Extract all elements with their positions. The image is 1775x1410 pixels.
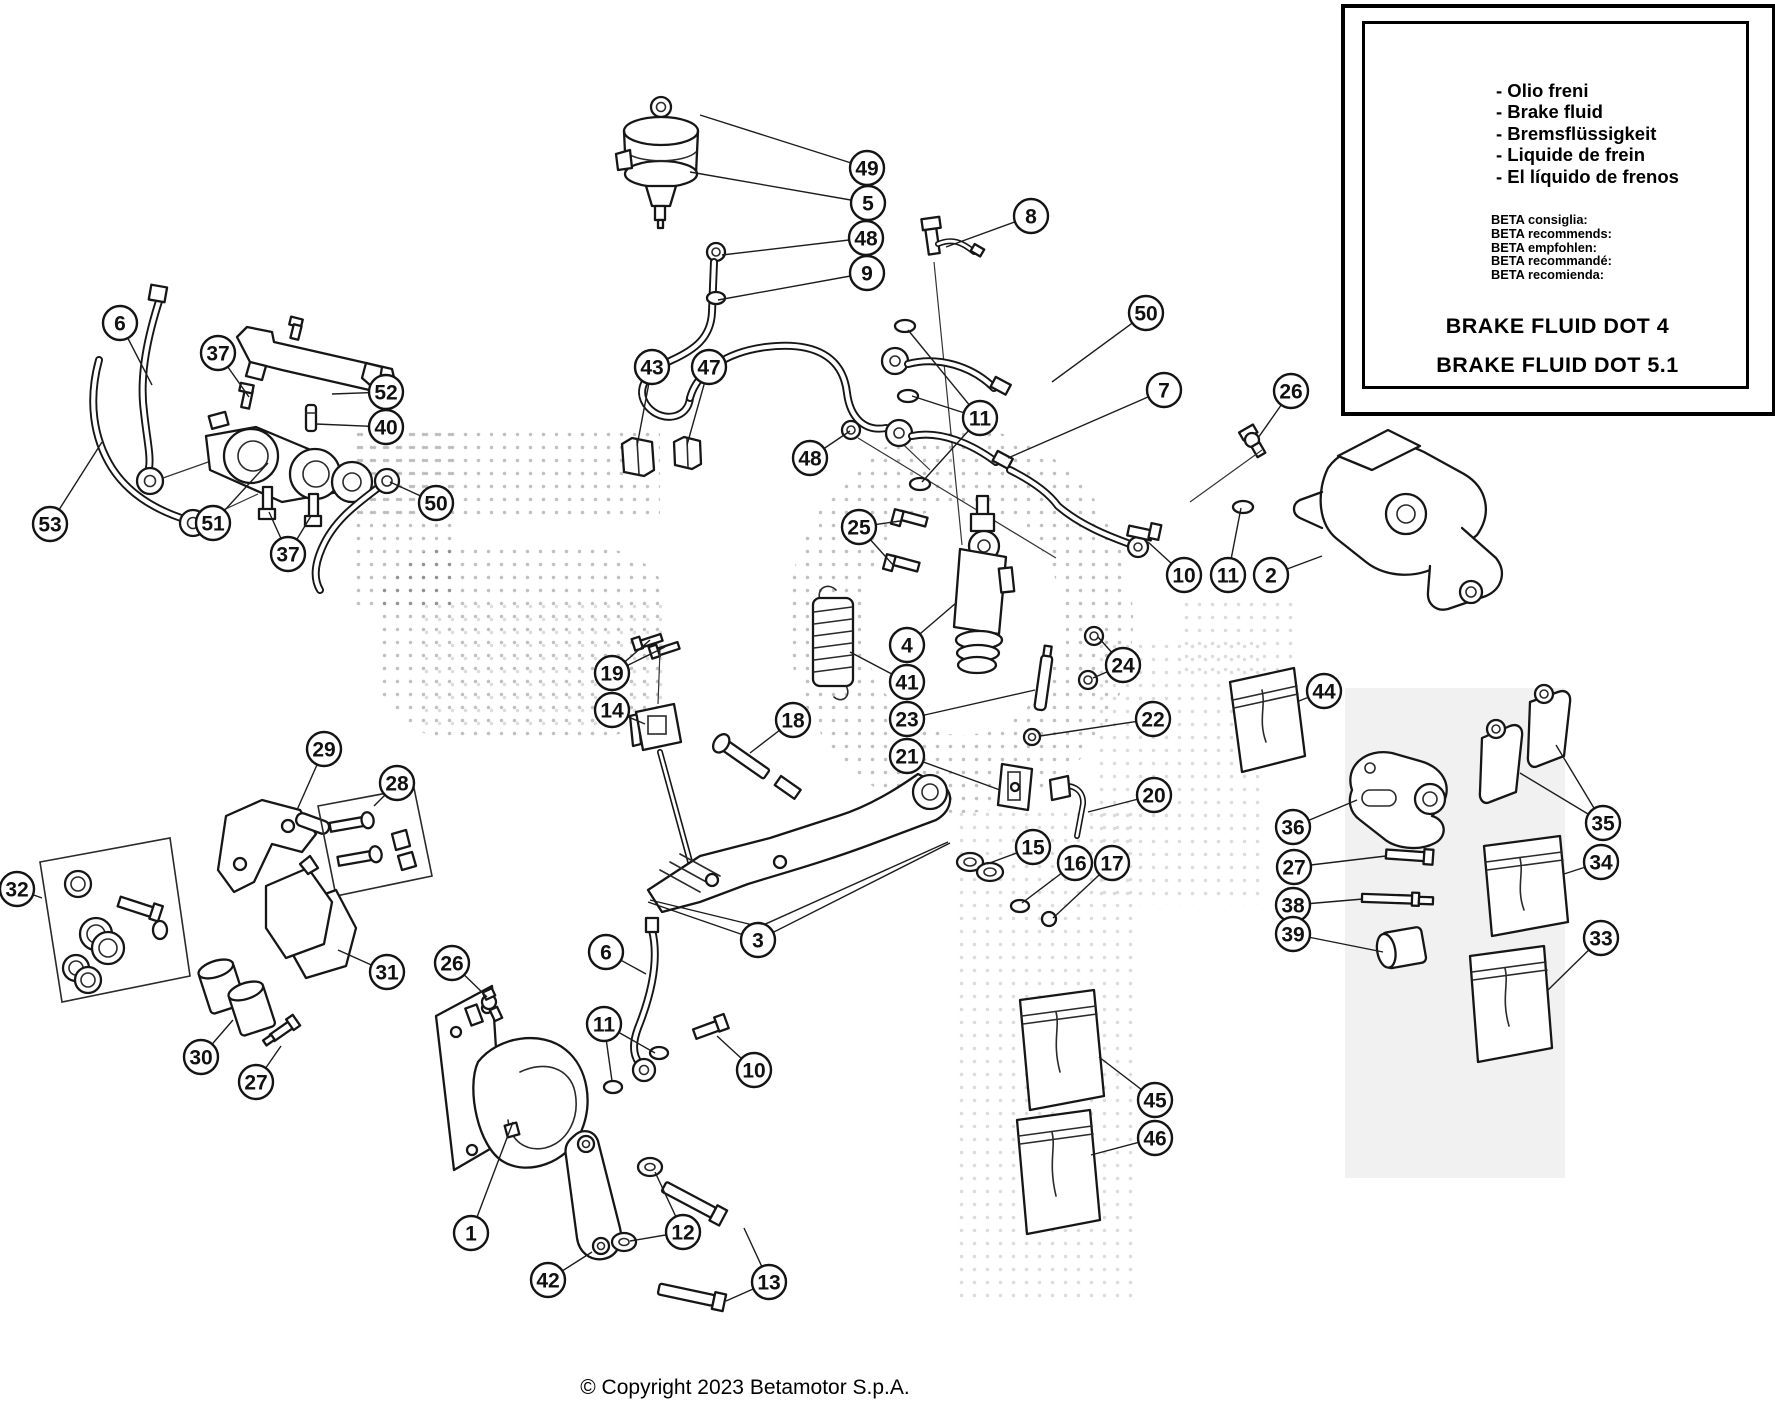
callout-27: 27 (1277, 850, 1311, 884)
callout-11: 11 (1211, 558, 1245, 592)
callout-10: 10 (737, 1053, 771, 1087)
part-brake-pads-31 (266, 856, 356, 978)
lang-german: - Bremsflüssigkeit (1496, 123, 1679, 144)
svg-text:15: 15 (1021, 837, 1045, 860)
svg-text:25: 25 (847, 517, 871, 540)
svg-text:40: 40 (374, 417, 397, 440)
svg-text:21: 21 (895, 746, 919, 769)
callout-5: 5 (851, 186, 885, 220)
callout-19: 19 (595, 656, 629, 690)
svg-text:44: 44 (1312, 681, 1336, 704)
svg-text:13: 13 (757, 1272, 780, 1295)
callout-15: 15 (1016, 830, 1050, 864)
callout-39: 39 (1276, 917, 1310, 951)
callout-26: 26 (435, 946, 469, 980)
svg-text:51: 51 (201, 513, 225, 536)
svg-text:29: 29 (312, 739, 335, 762)
callout-20: 20 (1137, 778, 1171, 812)
svg-text:47: 47 (697, 357, 720, 380)
part-spare-bag-44 (1230, 668, 1305, 772)
svg-text:17: 17 (1100, 853, 1123, 876)
beta-recommends: BETA consiglia: BETA recommends: BETA em… (1491, 213, 1612, 282)
lang-italian: - Olio freni (1496, 80, 1679, 101)
part-hook-20 (1050, 776, 1083, 836)
svg-text:43: 43 (640, 357, 663, 380)
part-bracket-14 (630, 650, 700, 898)
part-front-caliper-hose (604, 918, 729, 1093)
svg-text:36: 36 (1281, 817, 1304, 840)
svg-text:14: 14 (600, 700, 624, 723)
callout-1: 1 (454, 1216, 488, 1250)
callout-36: 36 (1276, 810, 1310, 844)
svg-text:45: 45 (1143, 1090, 1167, 1113)
callout-41: 41 (890, 665, 924, 699)
callout-7: 7 (1147, 373, 1181, 407)
part-reservoir (616, 97, 698, 228)
svg-text:27: 27 (1282, 857, 1305, 880)
svg-text:39: 39 (1281, 924, 1304, 947)
svg-text:50: 50 (1134, 303, 1157, 326)
lang-french: - Liquide de frein (1496, 144, 1679, 165)
svg-text:48: 48 (854, 228, 878, 251)
svg-text:48: 48 (798, 448, 822, 471)
callout-26: 26 (1274, 374, 1308, 408)
brake-fluid-names: - Olio freni - Brake fluid - Bremsflüssi… (1496, 80, 1679, 187)
callout-9: 9 (850, 256, 884, 290)
svg-text:35: 35 (1591, 813, 1615, 836)
callout-52: 52 (369, 375, 403, 409)
callout-4: 4 (890, 628, 924, 662)
callout-6: 6 (589, 935, 623, 969)
svg-text:28: 28 (385, 773, 409, 796)
part-washers-15-16-17 (957, 853, 1056, 926)
part-spare-bag-45 (1020, 990, 1104, 1110)
callout-43: 43 (635, 350, 669, 384)
callout-37: 37 (271, 537, 305, 571)
brake-fluid-dot4-label: BRAKE FLUID DOT 4 (1362, 314, 1753, 339)
svg-text:11: 11 (1217, 565, 1240, 588)
svg-text:50: 50 (424, 493, 447, 516)
svg-text:38: 38 (1281, 895, 1305, 918)
callout-11: 11 (963, 401, 997, 435)
part-bolt-18 (710, 731, 801, 799)
svg-text:52: 52 (374, 382, 397, 405)
callout-50: 50 (1129, 296, 1163, 330)
callout-49: 49 (850, 151, 884, 185)
callout-48: 48 (849, 221, 883, 255)
callout-22: 22 (1136, 702, 1170, 736)
part-spare-bag-34 (1484, 836, 1568, 936)
callout-35: 35 (1586, 806, 1620, 840)
svg-text:37: 37 (276, 544, 299, 567)
callout-12: 12 (666, 1215, 700, 1249)
part-spring-41 (813, 586, 853, 699)
part-rear-caliper (1294, 430, 1502, 610)
svg-text:20: 20 (1142, 785, 1165, 808)
part-bleeder-26-rear (1190, 425, 1265, 502)
svg-text:8: 8 (1025, 206, 1037, 229)
part-spare-bag-46 (1017, 1110, 1100, 1234)
callout-3: 3 (741, 923, 775, 957)
brake-fluid-dot51-label: BRAKE FLUID DOT 5.1 (1362, 353, 1753, 378)
svg-text:49: 49 (855, 158, 878, 181)
callout-31: 31 (370, 955, 404, 989)
callout-46: 46 (1138, 1121, 1172, 1155)
part-brake-pads-35 (1480, 685, 1570, 803)
callout-37: 37 (201, 336, 235, 370)
beta-line-es: BETA recomienda: (1491, 268, 1612, 282)
part-clevis-21 (998, 764, 1032, 810)
callout-45: 45 (1138, 1083, 1172, 1117)
svg-text:4: 4 (901, 635, 913, 658)
part-nuts-24 (1079, 627, 1103, 689)
part-pad-bolt-27 (1386, 846, 1434, 864)
callout-53: 53 (33, 507, 67, 541)
callout-34: 34 (1584, 845, 1618, 879)
svg-text:19: 19 (600, 663, 623, 686)
svg-text:1: 1 (465, 1223, 477, 1246)
svg-text:10: 10 (1172, 565, 1195, 588)
svg-text:23: 23 (895, 709, 918, 732)
svg-text:16: 16 (1063, 853, 1086, 876)
svg-text:10: 10 (742, 1060, 765, 1083)
callout-28: 28 (380, 766, 414, 800)
part-rear-master-cylinder (954, 496, 1014, 673)
callout-8: 8 (1014, 199, 1048, 233)
part-pad-pin-38 (1362, 891, 1433, 906)
part-brake-pedal (648, 774, 950, 926)
callout-30: 30 (184, 1040, 218, 1074)
lang-english: - Brake fluid (1496, 101, 1679, 122)
parts-diagram-page: BRAKE FLUID 4954898637524043475011726535… (0, 0, 1775, 1410)
callout-44: 44 (1307, 674, 1341, 708)
svg-text:53: 53 (38, 514, 61, 537)
callout-25: 25 (842, 510, 876, 544)
callout-18: 18 (776, 703, 810, 737)
callout-14: 14 (595, 693, 629, 727)
callout-51: 51 (196, 506, 230, 540)
callout-21: 21 (890, 739, 924, 773)
part-banjo-bolt-10-rear (1127, 501, 1253, 540)
svg-text:31: 31 (375, 962, 399, 985)
svg-text:6: 6 (600, 942, 612, 965)
callout-10: 10 (1167, 558, 1201, 592)
svg-text:26: 26 (440, 953, 463, 976)
svg-text:42: 42 (536, 1270, 559, 1293)
callout-6: 6 (103, 306, 137, 340)
callout-47: 47 (692, 350, 726, 384)
part-caliper-holder-36 (1350, 752, 1447, 848)
svg-text:18: 18 (781, 710, 805, 733)
lang-spanish: - El líquido de frenos (1496, 166, 1679, 187)
part-pistons-30 (196, 956, 276, 1037)
callout-42: 42 (531, 1263, 565, 1297)
svg-text:46: 46 (1143, 1128, 1166, 1151)
callout-29: 29 (307, 732, 341, 766)
part-spare-bag-33 (1470, 946, 1552, 1062)
svg-text:11: 11 (593, 1014, 616, 1037)
svg-text:3: 3 (752, 930, 764, 953)
svg-text:34: 34 (1589, 852, 1613, 875)
part-front-caliper (436, 986, 588, 1170)
callout-33: 33 (1584, 921, 1618, 955)
callout-13: 13 (752, 1265, 786, 1299)
svg-text:7: 7 (1158, 380, 1170, 403)
callout-27: 27 (239, 1065, 273, 1099)
callout-50: 50 (419, 486, 453, 520)
svg-text:2: 2 (1265, 565, 1277, 588)
svg-text:24: 24 (1111, 655, 1135, 678)
callout-11: 11 (587, 1007, 621, 1041)
part-pushrod-23 (1024, 646, 1053, 745)
svg-text:27: 27 (244, 1072, 267, 1095)
svg-text:32: 32 (5, 879, 28, 902)
callout-17: 17 (1095, 846, 1129, 880)
beta-line-fr: BETA recommandé: (1491, 254, 1612, 268)
beta-line-de: BETA empfohlen: (1491, 241, 1612, 255)
callout-24: 24 (1106, 648, 1140, 682)
callout-48: 48 (793, 441, 827, 475)
beta-line-en: BETA recommends: (1491, 227, 1612, 241)
callout-40: 40 (369, 410, 403, 444)
svg-text:12: 12 (671, 1222, 694, 1245)
beta-line-it: BETA consiglia: (1491, 213, 1612, 227)
svg-text:33: 33 (1589, 928, 1612, 951)
part-pin-40 (306, 405, 316, 431)
callout-2: 2 (1254, 558, 1288, 592)
part-piston-39 (1374, 926, 1427, 970)
part-reservoir-pipe (642, 243, 1056, 558)
svg-text:22: 22 (1141, 709, 1164, 732)
svg-text:37: 37 (206, 343, 229, 366)
part-hose-guides (622, 437, 701, 476)
callout-32: 32 (0, 872, 34, 906)
svg-text:5: 5 (862, 193, 874, 216)
svg-text:11: 11 (969, 408, 992, 431)
copyright-notice: © Copyright 2023 Betamotor S.p.A. (0, 1376, 1490, 1400)
svg-text:9: 9 (861, 263, 873, 286)
svg-text:41: 41 (895, 672, 919, 695)
svg-text:30: 30 (189, 1047, 212, 1070)
part-bolts-19 (632, 630, 680, 658)
svg-text:26: 26 (1279, 381, 1302, 404)
callout-23: 23 (890, 702, 924, 736)
svg-text:6: 6 (114, 313, 126, 336)
part-seal-kit-32 (40, 838, 190, 1002)
callout-16: 16 (1058, 846, 1092, 880)
